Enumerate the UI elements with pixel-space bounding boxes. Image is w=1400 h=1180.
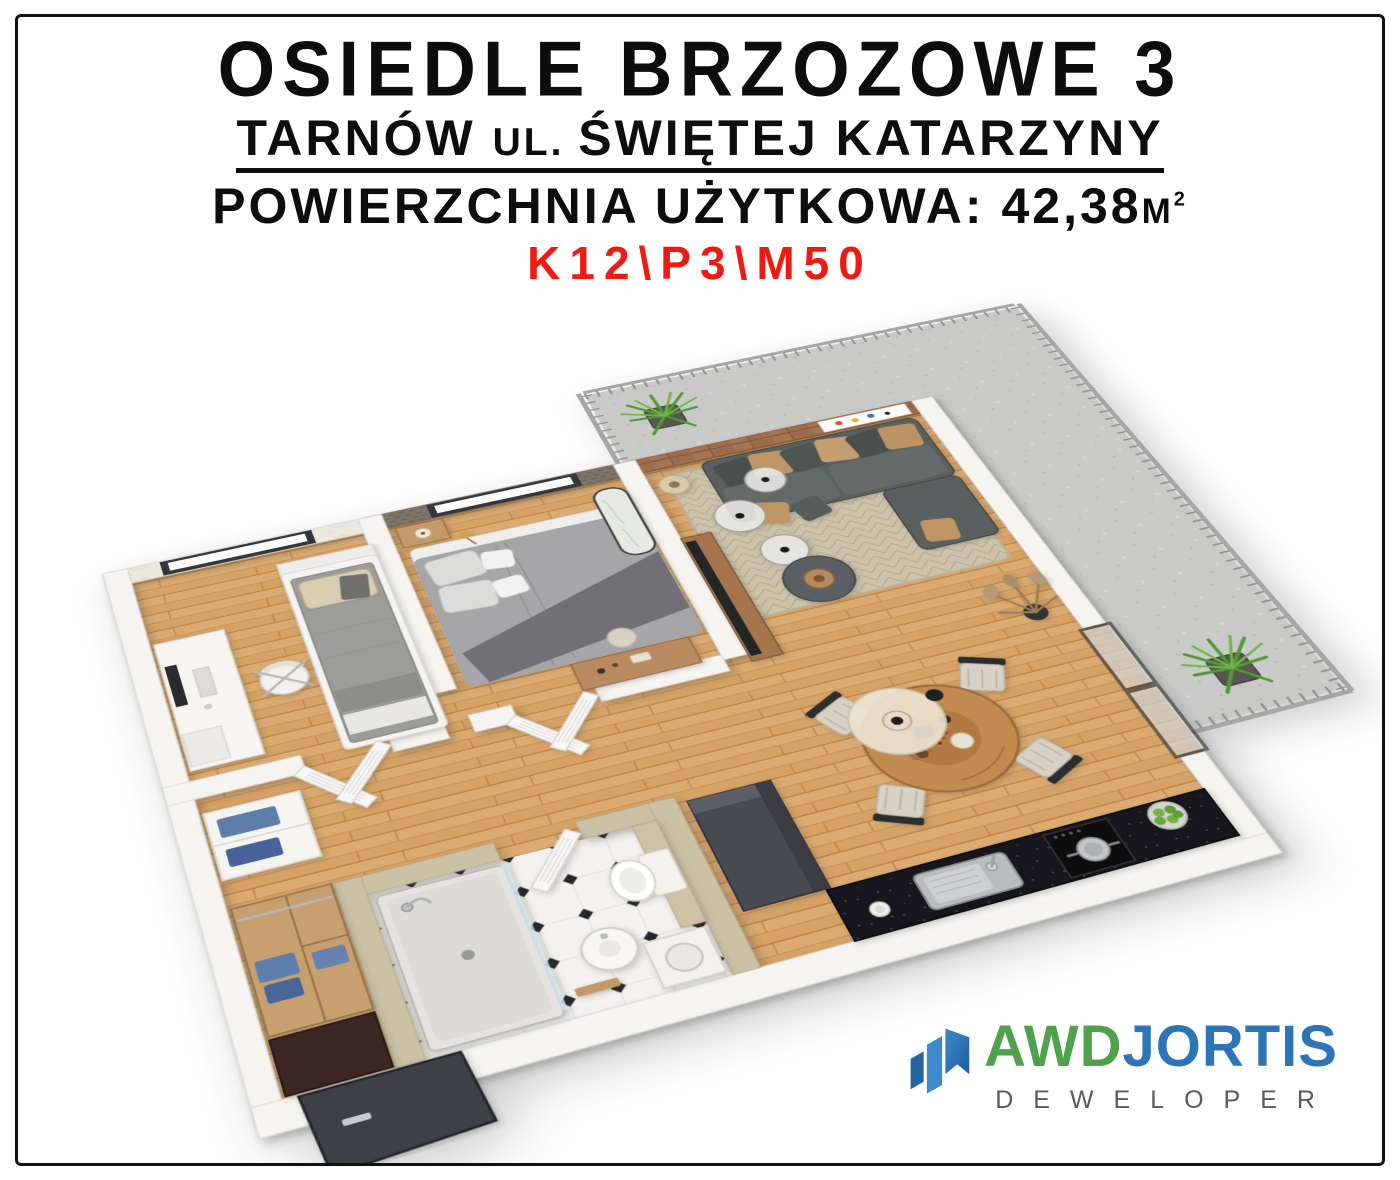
logo-wordmark: AWDJORTIS xyxy=(984,1018,1338,1076)
logo-mark-icon xyxy=(908,1022,974,1098)
floorplan-stage xyxy=(18,17,1382,1163)
cushion xyxy=(339,573,370,600)
developer-logo: AWDJORTIS DEWELOPER xyxy=(908,1018,1338,1115)
logo-tagline: DEWELOPER xyxy=(995,1086,1335,1115)
poster-frame: OSIEDLE BRZOZOWE 3 TARNÓW UL. ŚWIĘTEJ KA… xyxy=(15,14,1385,1166)
